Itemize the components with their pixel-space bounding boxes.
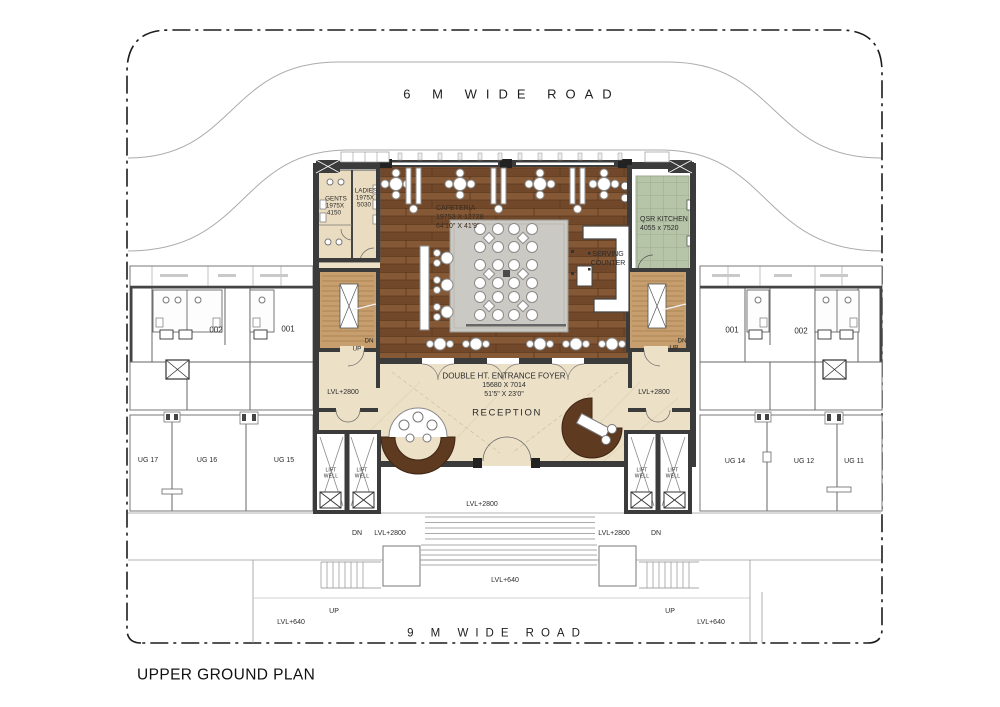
floor-plan-canvas: 6 M WIDE ROAD GENTS 1975X 4150 LADIES 19… <box>0 0 1000 707</box>
unit-label-ug17: UG 17 <box>138 457 158 465</box>
level-2800-bottom-right: LVL+2800 <box>598 530 630 538</box>
foyer-dim-ft: 51'5" X 23'0" <box>484 391 524 399</box>
unit-label-right-001: 001 <box>725 327 738 336</box>
level-2800-right: LVL+2800 <box>638 389 670 397</box>
page-title: UPPER GROUND PLAN <box>137 666 315 683</box>
landing-right <box>599 546 636 586</box>
road-label-bottom: 9 M WIDE ROAD <box>407 628 587 641</box>
unit-label-left-002: 002 <box>209 327 222 336</box>
unit-label-right-002: 002 <box>794 328 807 337</box>
lift-well-label-4: LIFTWELL <box>666 468 680 479</box>
left-wing-lift-icon <box>166 360 189 379</box>
serving-counter-label-1: SERVING <box>592 251 623 259</box>
unit-label-left-001: 001 <box>281 326 294 335</box>
cafeteria-dim-ft: 64'10" X 41'9" <box>436 223 479 231</box>
lift-well-label-1: LIFTWELL <box>324 468 338 479</box>
level-2800-bottom-left: LVL+2800 <box>374 530 406 538</box>
stair-dn-right: DN <box>677 337 686 344</box>
unit-label-ug16: UG 16 <box>197 457 217 465</box>
right-wing <box>700 266 882 410</box>
up-bottom-left: UP <box>329 608 339 616</box>
foyer-dim-mm: 15680 X 7014 <box>482 382 526 390</box>
road-label-top: 6 M WIDE ROAD <box>403 88 620 103</box>
dn-bottom-right: DN <box>651 530 661 538</box>
ladies-dim-2: 5030 <box>357 201 371 208</box>
stair-dn-left: DN <box>364 337 373 344</box>
reception-label: RECEPTION <box>472 409 542 420</box>
unit-label-ug11: UG 11 <box>844 458 864 466</box>
lift-well-label-2: LIFTWELL <box>355 468 369 479</box>
level-2800-center: LVL+2800 <box>466 501 498 509</box>
gents-label: GENTS <box>325 195 347 202</box>
cafeteria-label: CAFETERIA <box>436 205 475 213</box>
cafeteria-dim-mm: 19753 X 12728 <box>436 214 484 222</box>
up-bottom-right: UP <box>665 608 675 616</box>
landing-left <box>383 546 420 586</box>
plan-drawing <box>0 0 1000 707</box>
ladies-label: LADIES <box>355 187 377 194</box>
lift-well-label-3: LIFTWELL <box>635 468 649 479</box>
gents-dim-1: 1975X <box>326 202 344 209</box>
foyer-label: DOUBLE HT. ENTRANCE FOYER <box>442 373 565 382</box>
level-640-center: LVL+640 <box>491 577 519 585</box>
level-640-right: LVL+640 <box>697 619 725 627</box>
level-640-left: LVL+640 <box>277 619 305 627</box>
staircase-right <box>628 270 688 366</box>
right-wing-lift-icon <box>823 360 846 379</box>
cafeteria-carpet <box>450 220 568 332</box>
unit-label-ug15: UG 15 <box>274 457 294 465</box>
ladies-dim-1: 1975X <box>356 194 374 201</box>
stair-up-left: UP <box>353 345 362 352</box>
dn-bottom-left: DN <box>352 530 362 538</box>
left-wing <box>130 266 313 410</box>
staircase-left <box>318 270 378 366</box>
qsr-label: QSR KITCHEN <box>640 216 688 224</box>
gents-dim-2: 4150 <box>327 209 341 216</box>
level-2800-left: LVL+2800 <box>327 389 359 397</box>
qsr-dim: 4055 x 7520 <box>640 225 679 233</box>
stair-up-right: UP <box>670 344 679 351</box>
unit-label-ug12: UG 12 <box>794 458 814 466</box>
unit-label-ug14: UG 14 <box>725 458 745 466</box>
serving-counter-label-2: COUNTER <box>591 260 626 268</box>
